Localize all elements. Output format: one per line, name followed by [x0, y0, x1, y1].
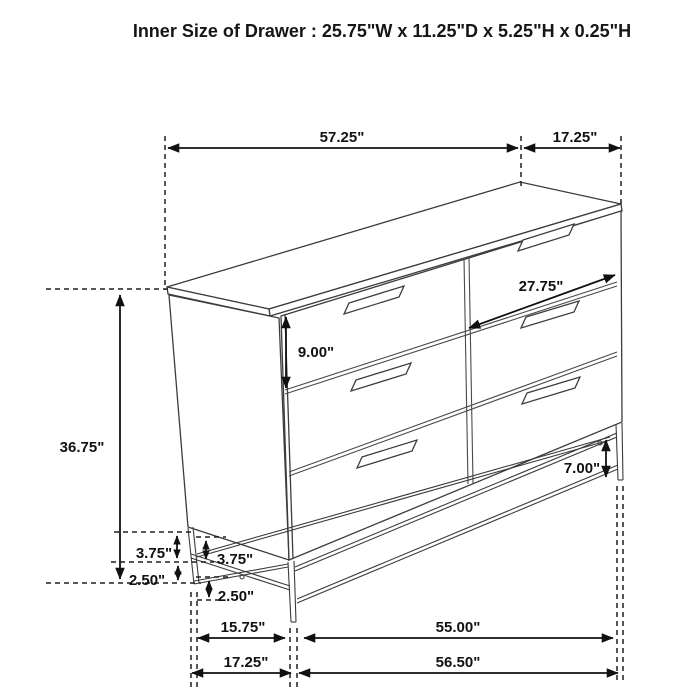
label-base-frame-front: 3.75": [217, 551, 253, 568]
label-base-depth-inner: 15.75": [221, 619, 266, 636]
dresser-cabinet-drawing: [167, 182, 622, 560]
diagram-title: Inner Size of Drawer : 25.75"W x 11.25"D…: [133, 21, 631, 41]
label-drawer-width: 27.75": [519, 278, 564, 295]
label-base-clearance: 7.00": [564, 460, 600, 477]
label-leg-front: 2.50": [218, 588, 254, 605]
dresser-dimension-diagram: Inner Size of Drawer : 25.75"W x 11.25"D…: [0, 0, 700, 700]
label-leg-side: 2.50": [129, 572, 165, 589]
label-depth-top: 17.25": [553, 129, 598, 146]
label-base-frame-side: 3.75": [136, 545, 172, 562]
diagram-canvas: Inner Size of Drawer : 25.75"W x 11.25"D…: [0, 0, 700, 700]
label-total-height: 36.75": [60, 439, 105, 456]
label-width-top: 57.25": [320, 129, 365, 146]
label-base-depth-outer: 17.25": [224, 654, 269, 671]
label-base-width-outer: 56.50": [436, 654, 481, 671]
label-drawer-height: 9.00": [298, 344, 334, 361]
label-base-width-inner: 55.00": [436, 619, 481, 636]
side-panel: [169, 295, 289, 560]
